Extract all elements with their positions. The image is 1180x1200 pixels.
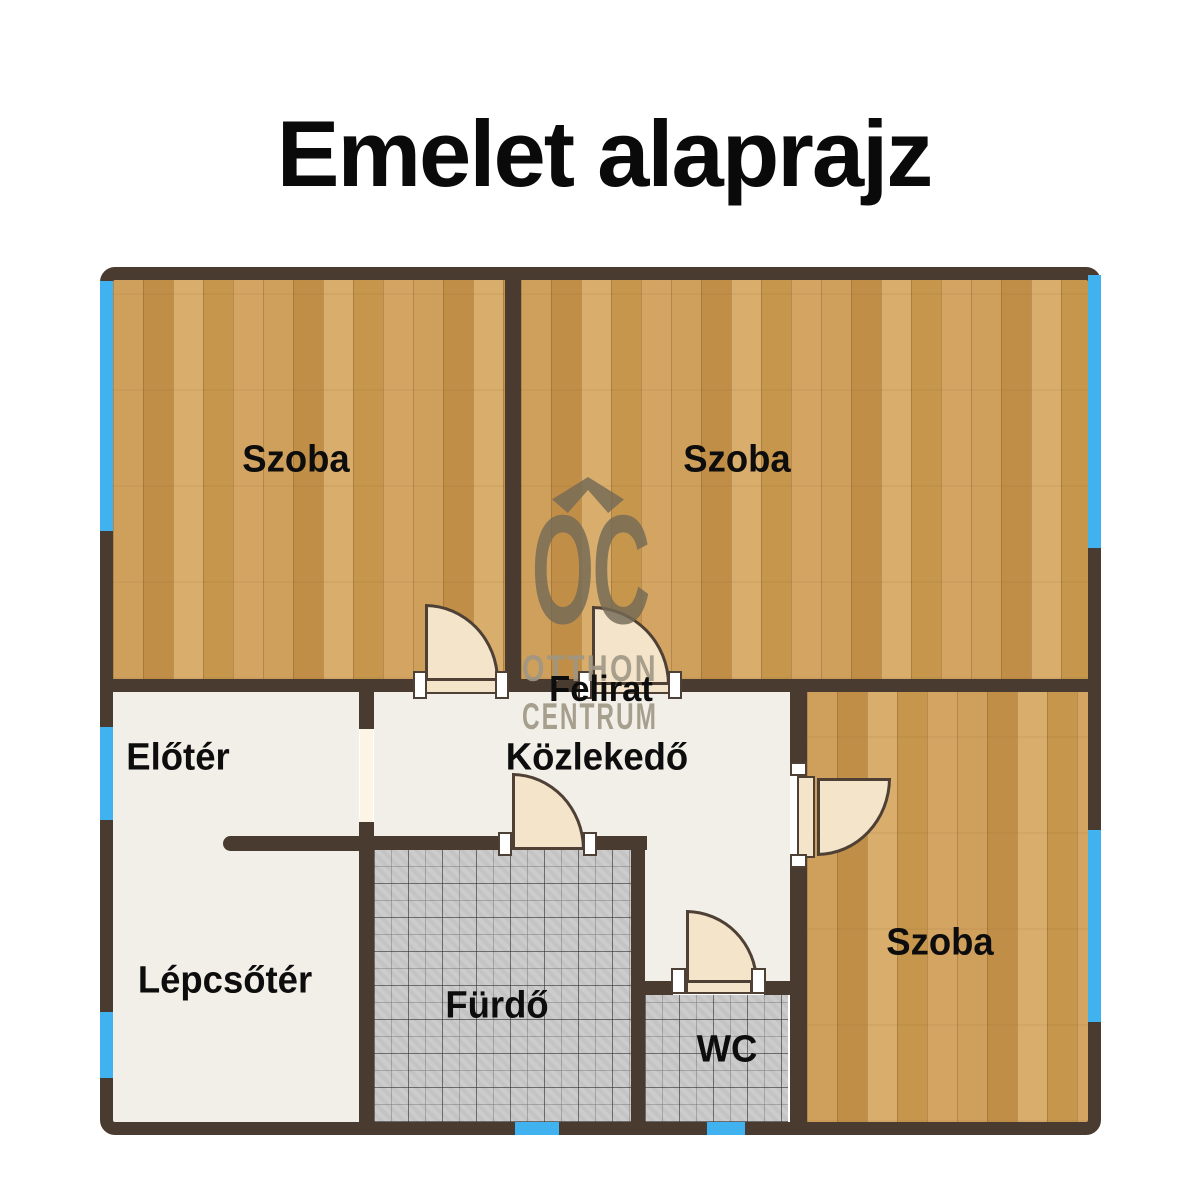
room-label-furdo: Fürdő — [445, 985, 548, 1028]
door-jamb — [671, 968, 686, 994]
page-title: Emelet alaprajz — [277, 100, 931, 208]
cased-opening-eloter — [360, 729, 373, 822]
room-label-szoba-top-right: Szoba — [683, 439, 790, 482]
room-label-szoba-right: Szoba — [886, 922, 993, 965]
room-label-lepcsoter: Lépcsőtér — [138, 960, 312, 1003]
door-jamb — [583, 832, 597, 856]
window-right-szoba-bottom — [1088, 830, 1101, 1022]
window-left-eloter — [100, 727, 113, 820]
door-jamb — [668, 671, 682, 699]
wall-kozlekedo-szoba — [790, 866, 807, 1122]
room-label-kozlekedo: Közlekedő — [506, 737, 688, 780]
window-right-szoba-top — [1088, 275, 1101, 548]
door-leaf-szoba-right — [797, 776, 815, 858]
floor-plan-page: Emelet alaprajz — [0, 0, 1180, 1200]
wall-eloter-kozlekedo — [359, 679, 374, 729]
window-left-lepcsoter — [100, 1012, 113, 1078]
window-bottom-wc — [707, 1122, 745, 1135]
wall-furdo-wc — [631, 848, 645, 1122]
door-jamb — [790, 762, 807, 776]
wall-mid-horizontal — [670, 679, 1088, 692]
wall-partial-lepcsoter — [223, 836, 374, 851]
room-label-szoba-top-left: Szoba — [242, 439, 349, 482]
door-jamb — [790, 854, 807, 868]
door-jamb — [495, 671, 509, 699]
wall-wc-top — [764, 981, 790, 995]
wall-eloter-furdo — [359, 822, 374, 1122]
room-label-wc: WC — [697, 1029, 758, 1072]
door-jamb — [413, 671, 427, 699]
room-label-eloter: Előtér — [126, 737, 229, 780]
annotation-felirat: Felirat — [549, 668, 653, 710]
wall-wc-top — [645, 981, 673, 995]
window-left-szoba — [100, 281, 113, 531]
wall-between-top-rooms — [505, 280, 521, 680]
wall-kozlekedo-szoba — [790, 679, 807, 764]
wall-furdo-top — [374, 836, 508, 850]
window-bottom-furdo — [515, 1122, 559, 1135]
door-jamb — [751, 968, 766, 994]
wall-mid-horizontal — [113, 679, 425, 692]
door-jamb — [498, 832, 512, 856]
